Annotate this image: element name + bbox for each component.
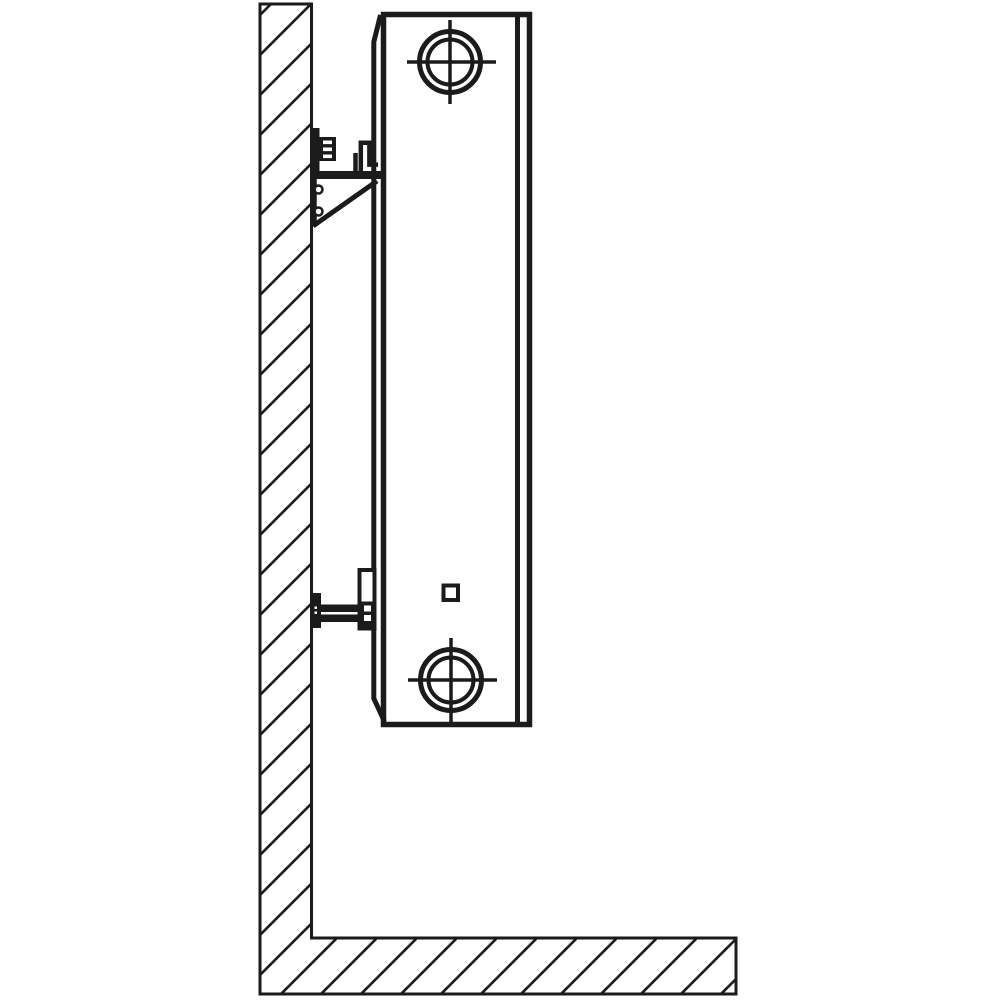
lower-bracket-clamp-plate (358, 570, 377, 630)
line-art (260, 4, 736, 994)
gusset-bump (315, 208, 323, 216)
radiator-installation-diagram (0, 0, 1000, 1000)
lower-bracket-anchor-bar (313, 593, 322, 628)
gusset-bump (315, 186, 323, 194)
lower-bracket-rod-lower-bar (321, 615, 361, 623)
clamp-plate-hole (364, 606, 371, 612)
lower-bracket-rod-upper-bar (321, 605, 361, 613)
upper-bracket-anchor-bar (313, 128, 320, 173)
clip-slot (323, 148, 332, 152)
anchor-screw-dot (315, 607, 318, 610)
clip-slot (323, 155, 332, 159)
clamp-plate-hole (364, 615, 371, 621)
square-detail (444, 586, 459, 601)
clip-slot (323, 141, 332, 145)
anchor-screw-dot (315, 612, 318, 615)
upper-bracket-arm (313, 171, 381, 179)
lower-wall-bracket (313, 593, 362, 628)
radiator-body-outline (384, 15, 530, 725)
technical-drawing-page (0, 0, 1000, 1000)
radiator-side-profile (374, 15, 530, 725)
